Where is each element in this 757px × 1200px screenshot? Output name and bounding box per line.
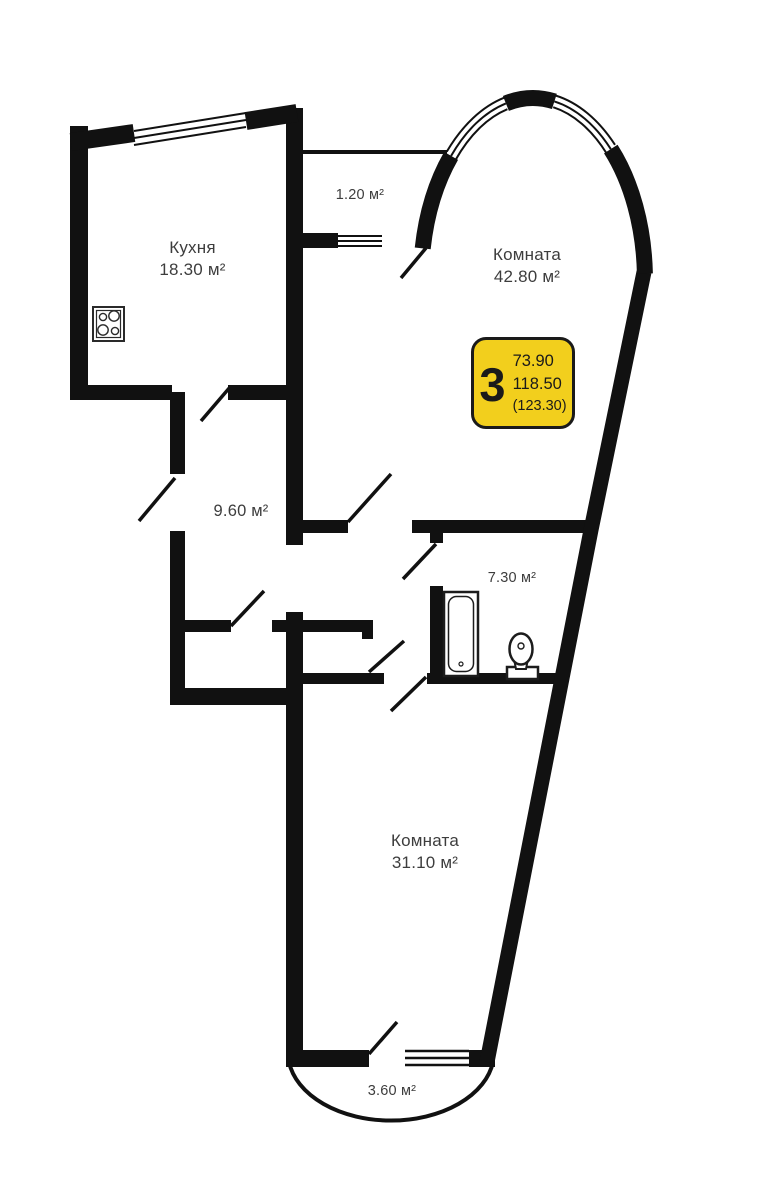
room-area: 1.20 м² <box>310 186 410 204</box>
room-area: 42.80 м² <box>457 266 597 288</box>
room-area: 7.30 м² <box>462 569 562 587</box>
room-label-balcony-top: 1.20 м² <box>310 186 410 204</box>
bathtub-icon <box>444 592 478 676</box>
room-label-bathroom: 7.30 м² <box>462 569 562 587</box>
room-area: 31.10 м² <box>355 852 495 874</box>
badge-total-area: 118.50 <box>513 373 567 396</box>
room-label-balcony-bottom: 3.60 м² <box>342 1082 442 1100</box>
badge-rooms-count: 3 <box>479 361 505 408</box>
room-area: 3.60 м² <box>342 1082 442 1100</box>
room-label-room-bottom: Комната 31.10 м² <box>355 830 495 874</box>
room-area: 18.30 м² <box>125 259 260 281</box>
badge-area-with-balcony: (123.30) <box>513 396 567 416</box>
stove-icon <box>93 307 124 341</box>
badge-areas: 73.90 118.50 (123.30) <box>513 350 567 416</box>
room-label-room-top: Комната 42.80 м² <box>457 244 597 288</box>
apartment-info-badge: 3 73.90 118.50 (123.30) <box>471 337 575 429</box>
room-label-kitchen: Кухня 18.30 м² <box>125 237 260 281</box>
toilet-icon <box>507 634 538 680</box>
room-name: Комната <box>457 244 597 266</box>
room-area: 9.60 м² <box>191 500 291 522</box>
room-name: Комната <box>355 830 495 852</box>
floor-plan: Кухня 18.30 м² Комната 42.80 м² 1.20 м² … <box>0 0 757 1200</box>
badge-living-area: 73.90 <box>513 350 567 373</box>
floor-plan-drawing <box>0 0 757 1200</box>
room-label-hallway: 9.60 м² <box>191 500 291 522</box>
room-name: Кухня <box>125 237 260 259</box>
